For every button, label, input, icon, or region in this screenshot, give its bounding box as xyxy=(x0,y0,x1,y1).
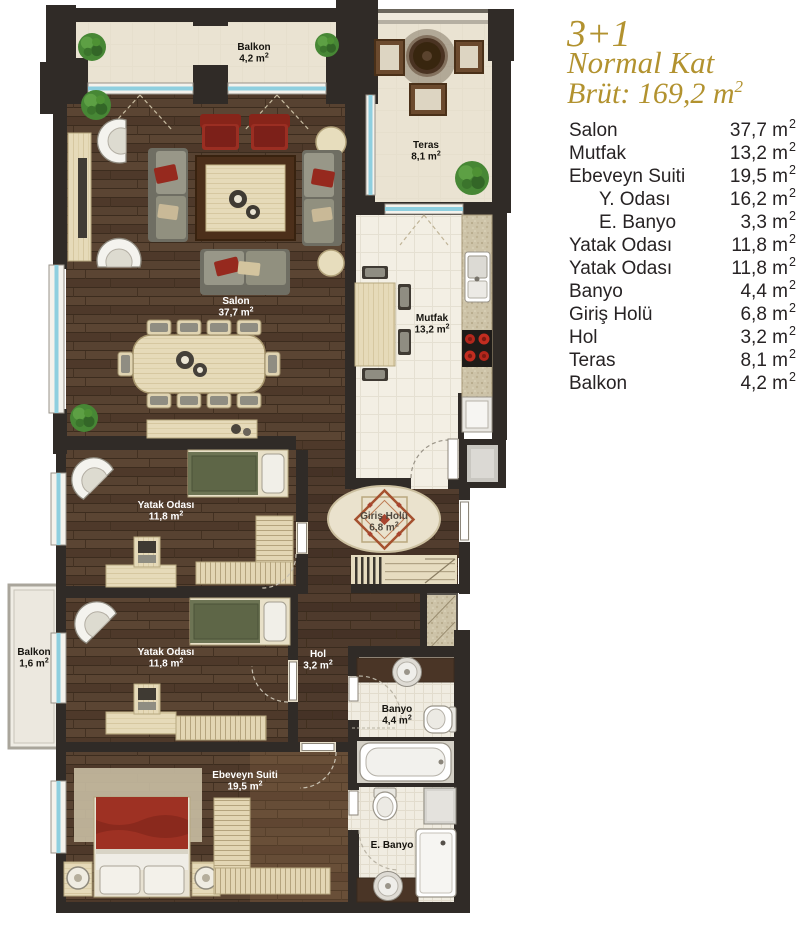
svg-text:Mutfak: Mutfak xyxy=(569,143,627,164)
svg-text:8,1 m: 8,1 m xyxy=(740,350,788,371)
svg-text:11,8 m: 11,8 m xyxy=(731,235,788,256)
svg-text:2: 2 xyxy=(789,370,796,384)
svg-text:2: 2 xyxy=(789,347,796,361)
svg-text:Hol: Hol xyxy=(569,327,598,348)
svg-text:11,8 m2: 11,8 m2 xyxy=(149,511,184,523)
svg-text:8,1 m2: 8,1 m2 xyxy=(411,151,441,163)
svg-text:4,2 m: 4,2 m xyxy=(740,373,788,394)
svg-text:1,6 m2: 1,6 m2 xyxy=(19,658,49,670)
svg-text:2: 2 xyxy=(789,232,796,246)
svg-text:Teras: Teras xyxy=(569,350,615,371)
svg-text:37,7 m2: 37,7 m2 xyxy=(218,307,253,319)
svg-text:Teras: Teras xyxy=(413,140,439,151)
svg-text:3,3 m: 3,3 m xyxy=(740,212,788,233)
svg-text:13,2 m: 13,2 m xyxy=(730,143,788,164)
svg-text:Ebeveyn Suiti: Ebeveyn Suiti xyxy=(569,166,685,187)
svg-text:2: 2 xyxy=(789,163,796,177)
svg-text:Yatak Odası: Yatak Odası xyxy=(569,258,672,279)
svg-text:Y. Odası: Y. Odası xyxy=(599,189,670,210)
svg-text:Brüt: 169,2 m2: Brüt: 169,2 m2 xyxy=(567,77,744,110)
svg-text:Yatak Odası: Yatak Odası xyxy=(138,647,195,658)
svg-text:3,2 m: 3,2 m xyxy=(740,327,788,348)
svg-text:E. Banyo: E. Banyo xyxy=(371,840,414,851)
svg-text:Balkon: Balkon xyxy=(17,647,50,658)
svg-text:2: 2 xyxy=(789,301,796,315)
svg-text:4,2 m2: 4,2 m2 xyxy=(239,53,269,65)
svg-text:11,8 m: 11,8 m xyxy=(731,258,788,279)
svg-text:E. Banyo: E. Banyo xyxy=(599,212,676,233)
svg-text:Yatak Odası: Yatak Odası xyxy=(569,235,672,256)
svg-text:19,5 m: 19,5 m xyxy=(730,166,788,187)
svg-text:Salon: Salon xyxy=(222,296,249,307)
svg-text:6,8 m2: 6,8 m2 xyxy=(369,522,399,534)
svg-text:16,2 m: 16,2 m xyxy=(730,189,788,210)
svg-text:37,7 m: 37,7 m xyxy=(730,120,788,141)
svg-text:Balkon: Balkon xyxy=(569,373,627,394)
svg-text:2: 2 xyxy=(789,140,796,154)
svg-text:11,8 m2: 11,8 m2 xyxy=(149,658,184,670)
svg-text:4,4 m: 4,4 m xyxy=(740,281,788,302)
svg-text:19,5 m2: 19,5 m2 xyxy=(227,781,262,793)
svg-text:Giriş Holü: Giriş Holü xyxy=(360,511,408,522)
svg-text:Balkon: Balkon xyxy=(237,42,270,53)
svg-text:2: 2 xyxy=(789,324,796,338)
svg-text:3,2 m2: 3,2 m2 xyxy=(303,660,333,672)
svg-text:4,4 m2: 4,4 m2 xyxy=(382,715,412,727)
svg-text:Banyo: Banyo xyxy=(569,281,623,302)
svg-text:Normal Kat: Normal Kat xyxy=(566,45,716,80)
svg-text:13,2 m2: 13,2 m2 xyxy=(414,324,449,336)
svg-text:Ebeveyn Suiti: Ebeveyn Suiti xyxy=(212,770,278,781)
svg-text:Yatak Odası: Yatak Odası xyxy=(138,500,195,511)
svg-text:6,8 m: 6,8 m xyxy=(740,304,788,325)
svg-text:Giriş Holü: Giriş Holü xyxy=(569,304,652,325)
svg-text:Mutfak: Mutfak xyxy=(416,313,449,324)
svg-text:Hol: Hol xyxy=(310,649,326,660)
svg-text:2: 2 xyxy=(789,186,796,200)
svg-text:2: 2 xyxy=(789,278,796,292)
svg-text:Salon: Salon xyxy=(569,120,618,141)
svg-text:2: 2 xyxy=(789,209,796,223)
svg-text:2: 2 xyxy=(789,255,796,269)
svg-text:2: 2 xyxy=(789,117,796,131)
svg-text:Banyo: Banyo xyxy=(382,704,413,715)
